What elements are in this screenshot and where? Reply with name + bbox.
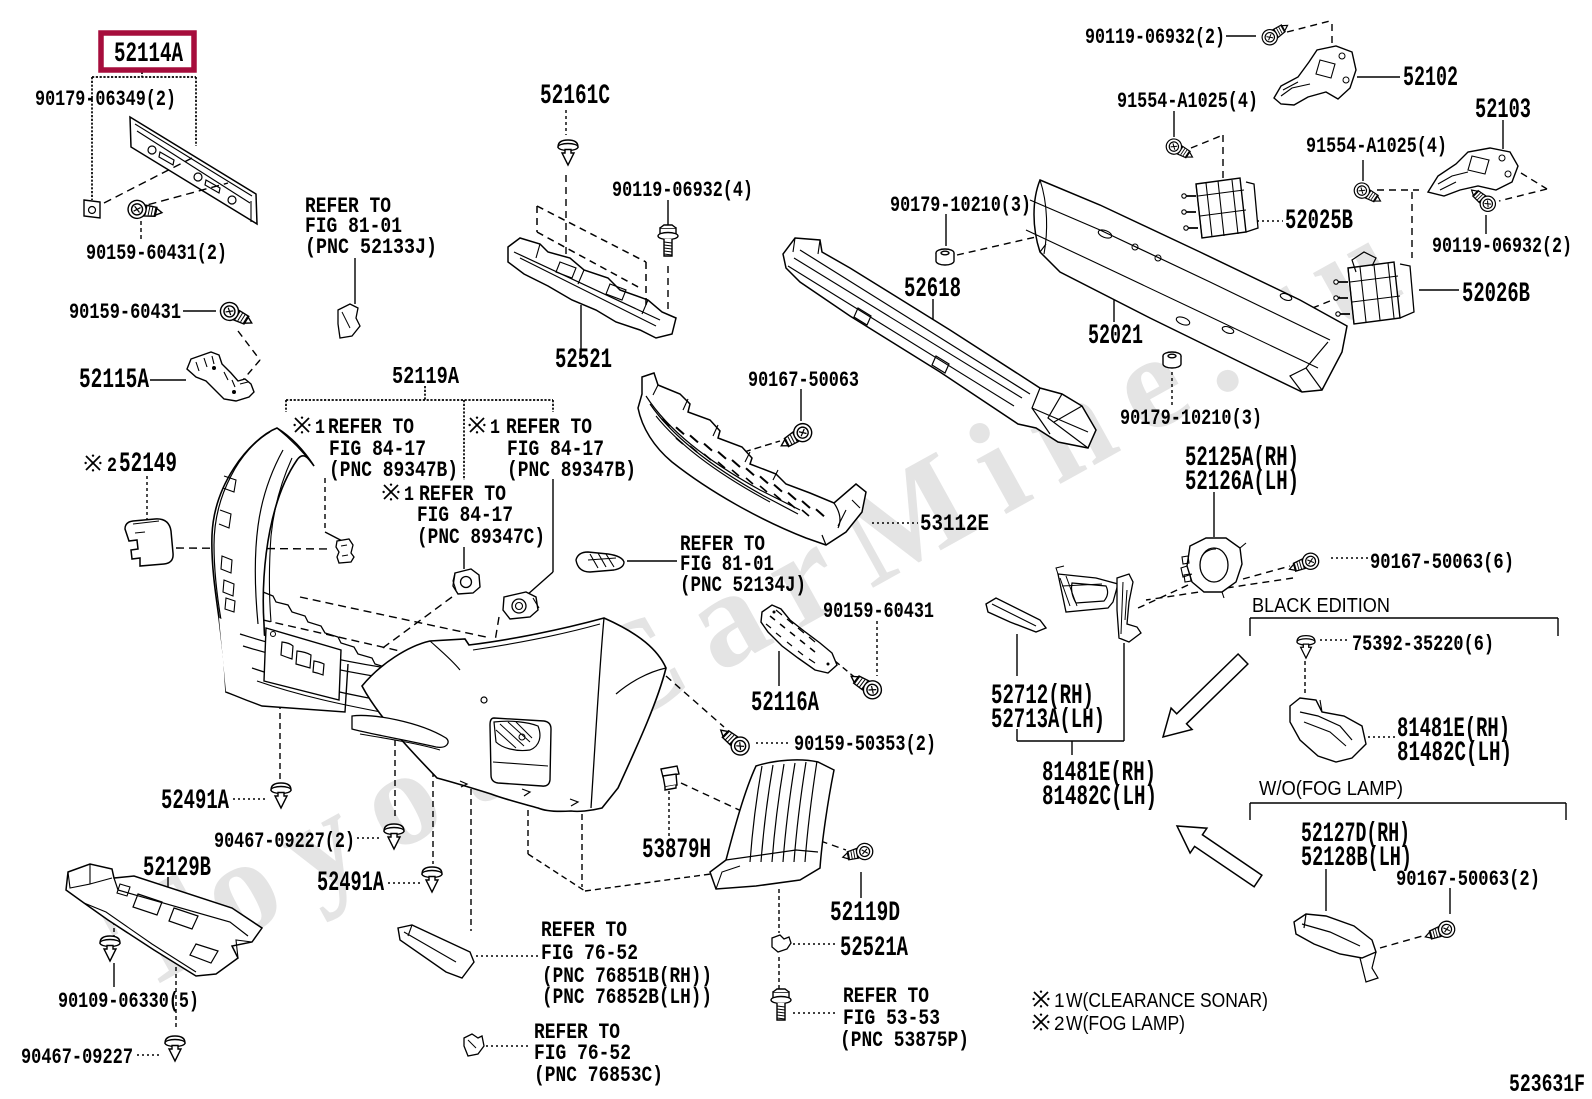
- svg-text:2: 2: [1054, 1014, 1065, 1035]
- svg-text:52618: 52618: [904, 274, 961, 305]
- svg-text:81482C(LH): 81482C(LH): [1042, 782, 1157, 813]
- svg-text:52119A: 52119A: [392, 364, 459, 391]
- svg-text:W(FOG LAMP): W(FOG LAMP): [1066, 1013, 1185, 1035]
- svg-text:52126A(LH): 52126A(LH): [1185, 467, 1299, 498]
- svg-text:523631F: 523631F: [1509, 1070, 1585, 1099]
- svg-text:90179-10210(3): 90179-10210(3): [890, 192, 1031, 218]
- svg-text:52026B: 52026B: [1462, 279, 1530, 310]
- svg-text:52491A: 52491A: [317, 868, 384, 899]
- svg-text:90467-09227(2): 90467-09227(2): [214, 828, 355, 854]
- svg-text:(PNC 76853C): (PNC 76853C): [534, 1062, 663, 1088]
- svg-text:1: 1: [404, 484, 414, 507]
- svg-text:90159-60431(2): 90159-60431(2): [86, 240, 227, 266]
- svg-text:52521: 52521: [555, 345, 612, 376]
- svg-text:90119-06932(2): 90119-06932(2): [1432, 233, 1572, 259]
- svg-text:90167-50063(2): 90167-50063(2): [1396, 866, 1540, 892]
- svg-text:90179-06349(2): 90179-06349(2): [35, 86, 176, 112]
- svg-text:52521A: 52521A: [840, 933, 908, 964]
- svg-text:53112E: 53112E: [920, 511, 989, 537]
- svg-text:(PNC 52134J): (PNC 52134J): [680, 572, 806, 598]
- svg-text:90159-50353(2): 90159-50353(2): [794, 731, 936, 757]
- svg-text:52129B: 52129B: [143, 853, 211, 884]
- svg-text:(PNC 53875P): (PNC 53875P): [840, 1027, 969, 1053]
- svg-text:1: 1: [1054, 991, 1065, 1012]
- svg-text:52021: 52021: [1088, 321, 1143, 352]
- svg-text:91554-A1025(4): 91554-A1025(4): [1306, 133, 1447, 159]
- svg-text:(PNC 76852B(LH)): (PNC 76852B(LH)): [542, 984, 712, 1010]
- svg-text:75392-35220(6): 75392-35220(6): [1352, 631, 1494, 657]
- svg-text:52491A: 52491A: [161, 786, 229, 817]
- svg-text:52103: 52103: [1475, 95, 1531, 126]
- svg-text:52149: 52149: [119, 449, 177, 480]
- svg-text:91554-A1025(4): 91554-A1025(4): [1117, 88, 1258, 114]
- svg-text:90119-06932(2): 90119-06932(2): [1085, 24, 1225, 50]
- svg-text:52114A: 52114A: [114, 39, 183, 70]
- svg-text:53879H: 53879H: [642, 835, 711, 866]
- svg-text:52119D: 52119D: [830, 898, 900, 929]
- svg-text:(PNC 89347B): (PNC 89347B): [329, 457, 458, 483]
- svg-text:W/O(FOG LAMP): W/O(FOG LAMP): [1259, 778, 1403, 800]
- svg-text:90159-60431: 90159-60431: [69, 299, 181, 325]
- svg-text:90467-09227: 90467-09227: [21, 1044, 133, 1070]
- svg-text:90179-10210(3): 90179-10210(3): [1120, 405, 1262, 431]
- svg-text:(PNC 89347B): (PNC 89347B): [507, 457, 636, 483]
- svg-text:1: 1: [490, 417, 500, 440]
- svg-text:(PNC 89347C): (PNC 89347C): [417, 524, 545, 550]
- svg-text:52161C: 52161C: [540, 81, 610, 112]
- svg-text:BLACK EDITION: BLACK EDITION: [1252, 595, 1390, 617]
- svg-text:W(CLEARANCE SONAR): W(CLEARANCE SONAR): [1066, 990, 1268, 1012]
- svg-text:90119-06932(4): 90119-06932(4): [612, 177, 753, 203]
- svg-text:52025B: 52025B: [1285, 206, 1353, 237]
- svg-text:52713A(LH): 52713A(LH): [991, 705, 1105, 736]
- svg-text:52102: 52102: [1403, 63, 1458, 94]
- svg-text:90159-60431: 90159-60431: [823, 598, 934, 624]
- svg-text:2: 2: [107, 455, 117, 478]
- svg-text:90167-50063: 90167-50063: [748, 367, 859, 393]
- svg-text:(PNC 52133J): (PNC 52133J): [305, 234, 437, 260]
- svg-text:81482C(LH): 81482C(LH): [1397, 738, 1512, 769]
- svg-text:52116A: 52116A: [751, 688, 819, 719]
- svg-text:1: 1: [315, 417, 325, 440]
- svg-text:52115A: 52115A: [79, 365, 149, 396]
- svg-text:90167-50063(6): 90167-50063(6): [1370, 549, 1514, 575]
- svg-text:90109-06330(5): 90109-06330(5): [58, 988, 199, 1014]
